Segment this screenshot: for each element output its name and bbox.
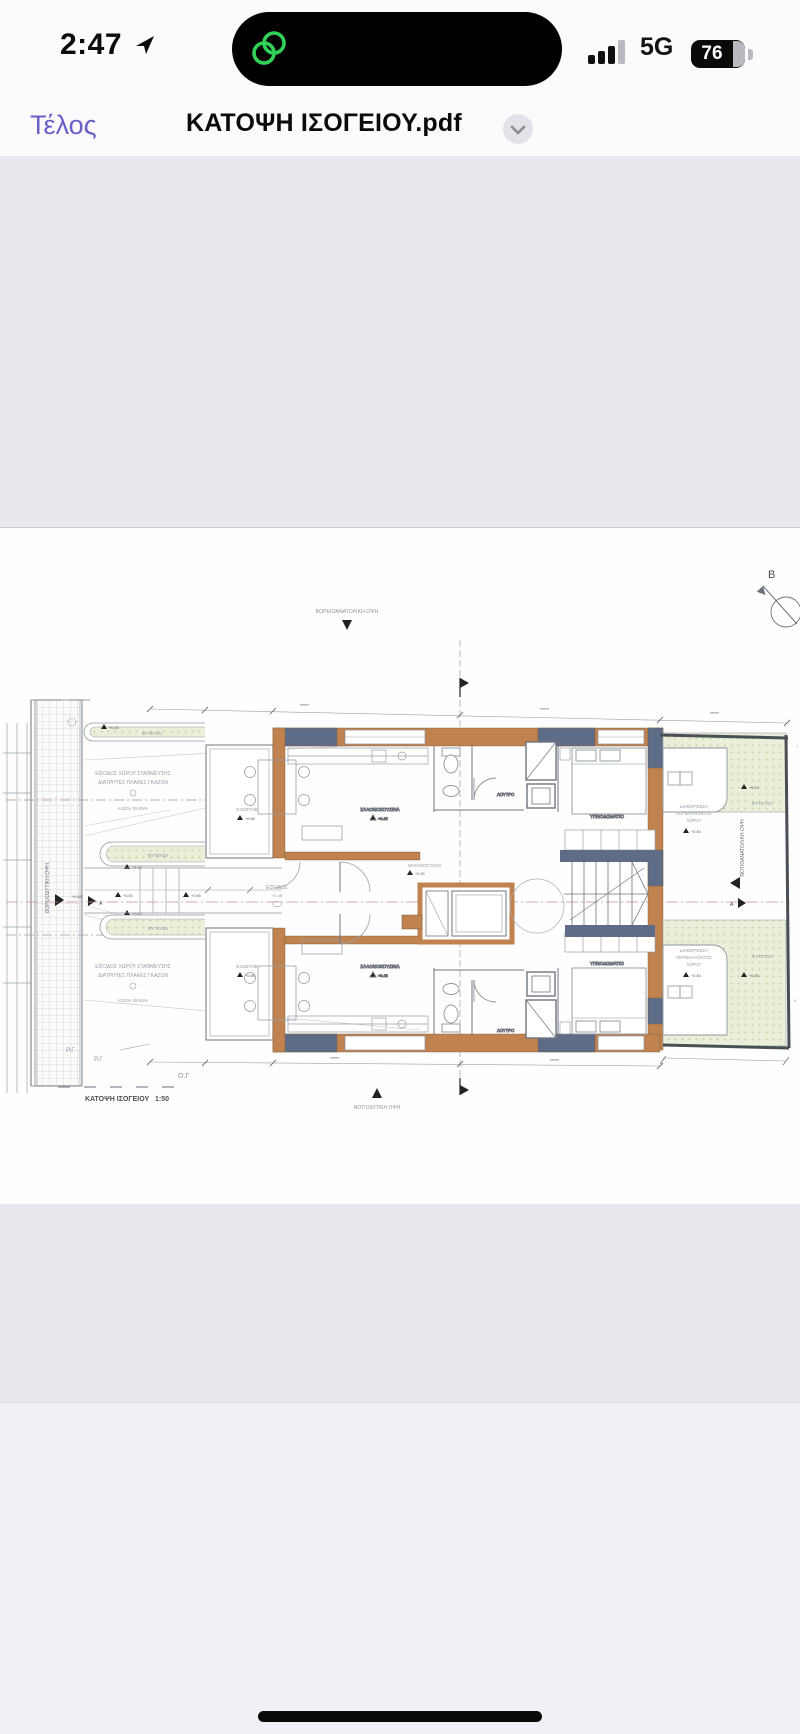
svg-text:+0.45: +0.45 [191,894,201,898]
parking-entrance-label-top: ΕΙΣΟΔΟΣ ΧΩΡΟΥ ΣΤΑΘΜΕΥΣΗΣ ΔΙΑΤΡΗΤΕΣ ΠΛΑΚΕ… [95,771,171,811]
svg-text:ΕΙΣΟΔΟΣ ΧΩΡΟΥ ΣΤΑΘΜΕΥΣΗΣ: ΕΙΣΟΔΟΣ ΧΩΡΟΥ ΣΤΑΘΜΕΥΣΗΣ [95,964,171,970]
svg-text:+0.45: +0.45 [378,974,388,978]
battery-cap [748,49,753,60]
svg-text:+0.45: +0.45 [415,872,425,876]
status-time: 2:47 [60,28,122,62]
svg-text:ΥΠΝΟΔΩΜΑΤΙΟ: ΥΠΝΟΔΩΜΑΤΙΟ [590,961,624,966]
svg-text:7: 7 [796,744,799,749]
unit-top-interior: ΛΟΥΤΡΟ ΥΠΝΟΔΩΜΑΤΙΟ ΣΑΛΟΝΟΚΟΥΖΙΝΑ +0.45 [245,740,656,850]
svg-text:+0.45: +0.45 [72,895,82,899]
svg-text:ΦΥΤΕΥΣΗ: ΦΥΤΕΥΣΗ [752,954,773,959]
title-menu-button[interactable] [503,114,533,144]
document-title: ΚΑΤΟΨΗ ΙΣΟΓΕΙΟΥ.pdf [186,109,462,138]
dimension-line-top [147,704,790,726]
chevron-down-icon [503,114,533,144]
plan-caption: ΚΑΤΟΨΗ ΙΣΟΓΕΙΟΥ 1:50 [85,1096,169,1103]
iphone-screen: 2:47 5G 76 Τέλος ΚΑΤΟΨΗ ΙΣΟΓΕΙΟΥ.pdf [0,0,800,1734]
elevator [402,885,512,942]
bottom-toolbar [0,1402,800,1734]
svg-text:+0.45: +0.45 [123,894,133,898]
svg-text:Ρ.Γ: Ρ.Γ [94,1056,103,1063]
svg-text:Β: Β [768,569,775,581]
core-entrance-hall: ΜΗΧΑΝΟΣΤΑΣΙΟ +0.45 [274,862,442,944]
battery-percent: 76 [691,43,733,65]
landscape-right-bottom: ΔΙΑΜΟΡΦΩΣΗ ΠΕΡΙΒΑΛΛΟΝΤΟΣ ΧΩΡΟΥ +0.45 ΦΥΤ… [663,920,786,1046]
done-button[interactable]: Τέλος [30,110,97,141]
location-arrow-icon [134,34,156,61]
signal-bars-icon [588,40,628,64]
landscape-right-top: ΔΙΑΜΟΡΦΩΣΗ ΠΕΡΙΒΑΛΛΟΝΤΟΣ ΧΩΡΟΥ +0.45 ΦΥΤ… [663,733,786,834]
svg-text:ΔΙΑΤΡΗΤΕΣ ΠΛΑΚΕΣ ΓΚΑΖΟΝ: ΔΙΑΤΡΗΤΕΣ ΠΛΑΚΕΣ ΓΚΑΖΟΝ [98,973,168,979]
battery-icon: 76 [691,40,745,68]
svg-text:ΚΛΙΣΗ 29.95%: ΚΛΙΣΗ 29.95% [118,806,148,811]
svg-text:ΧΩΡΟΥ: ΧΩΡΟΥ [687,962,702,967]
svg-text:ΣΑΛΟΝΟΚΟΥΖΙΝΑ: ΣΑΛΟΝΟΚΟΥΖΙΝΑ [360,807,400,812]
svg-text:A: A [730,902,734,908]
svg-text:ΜΗΧΑΝΟΣΤΑΣΙΟ: ΜΗΧΑΝΟΣΤΑΣΙΟ [408,863,442,868]
svg-text:ΕΞΩΣΤΗΣ: ΕΞΩΣΤΗΣ [236,964,257,969]
dynamic-island[interactable] [232,12,562,86]
svg-text:+0.45: +0.45 [691,830,701,834]
turning-circle [510,879,564,933]
svg-text:+0.68: +0.68 [245,974,255,978]
svg-text:ΝΟΤΙΟΑΝΑΤΟΛΙΚΗ ΟΨΗ: ΝΟΤΙΟΑΝΑΤΟΛΙΚΗ ΟΨΗ [740,819,746,877]
svg-text:ΦΥΤΕΥΣΗ: ΦΥΤΕΥΣΗ [142,731,163,736]
staircase [560,850,655,937]
svg-text:ΔΙΑΜΟΡΦΩΣΗ: ΔΙΑΜΟΡΦΩΣΗ [680,804,708,809]
floor-plan-drawing: Β ΒΟΡΕΙΟΑΝΑΤΟΛΙΚΗ ΟΨΗ [0,528,800,1204]
balcony-bottom-unit: ΕΞΩΣΤΗΣ +0.68 [206,928,273,1040]
svg-text:+0.45: +0.45 [691,974,701,978]
entrance-walkway: A +0.45 +0.45 ΕΙΣΟΔΟΣ +0.45 [6,868,790,913]
balcony-top-unit: ΕΞΩΣΤΗΣ +0.68 [206,745,273,858]
svg-text:Ρ.Γ: Ρ.Γ [66,1047,75,1054]
pdf-background-bottom[interactable] [0,1204,800,1402]
svg-text:+0.68: +0.68 [245,817,255,821]
svg-text:ΝΟΤΙΟΔΥΤΙΚΗ ΟΨΗ: ΝΟΤΙΟΔΥΤΙΚΗ ΟΨΗ [354,1105,401,1111]
planting-strip-bottom: ΦΥΤΕΥΣΗ +0.45 [100,910,205,939]
svg-text:ΦΥΤΕΥΣΗ: ΦΥΤΕΥΣΗ [148,926,169,931]
svg-text:ΔΙΑΤΡΗΤΕΣ ΠΛΑΚΕΣ ΓΚΑΖΟΝ: ΔΙΑΤΡΗΤΕΣ ΠΛΑΚΕΣ ΓΚΑΖΟΝ [98,780,168,786]
svg-text:ΦΥΤΕΥΣΗ: ΦΥΤΕΥΣΗ [752,801,773,806]
svg-text:ΒΟΡΕΙΟΔΥΤΙΚΗ ΟΨΗ: ΒΟΡΕΙΟΔΥΤΙΚΗ ΟΨΗ [45,863,51,913]
svg-text:ΧΩΡΟΥ: ΧΩΡΟΥ [687,818,702,823]
svg-text:ΠΕΡΙΒΑΛΛΟΝΤΟΣ: ΠΕΡΙΒΑΛΛΟΝΤΟΣ [676,955,712,960]
pdf-page[interactable]: Β ΒΟΡΕΙΟΑΝΑΤΟΛΙΚΗ ΟΨΗ [0,528,800,1204]
svg-text:ΚΛΙΣΗ 29.95%: ΚΛΙΣΗ 29.95% [118,998,148,1003]
svg-text:ΛΟΥΤΡΟ: ΛΟΥΤΡΟ [497,1028,515,1033]
planting-strip-top: ΦΥΤΕΥΣΗ +0.45 [84,723,205,741]
svg-text:ΠΕΡΙΒΑΛΛΟΝΤΟΣ: ΠΕΡΙΒΑΛΛΟΝΤΟΣ [676,811,712,816]
status-and-nav-bar: 2:47 5G 76 Τέλος ΚΑΤΟΨΗ ΙΣΟΓΕΙΟΥ.pdf [0,0,800,156]
svg-text:6: 6 [794,998,797,1003]
svg-text:ΕΙΣΟΔΟΣ ΧΩΡΟΥ ΣΤΑΘΜΕΥΣΗΣ: ΕΙΣΟΔΟΣ ΧΩΡΟΥ ΣΤΑΘΜΕΥΣΗΣ [95,771,171,777]
battery-empty-part [733,41,745,67]
svg-text:ΛΟΥΤΡΟ: ΛΟΥΤΡΟ [497,792,515,797]
elevation-label-ne: ΒΟΡΕΙΟΑΝΑΤΟΛΙΚΗ ΟΨΗ [316,609,379,630]
parking-entrance-label-bottom: ΕΙΣΟΔΟΣ ΧΩΡΟΥ ΣΤΑΘΜΕΥΣΗΣ ΔΙΑΤΡΗΤΕΣ ΠΛΑΚΕ… [95,964,171,1003]
svg-text:Ο.Γ: Ο.Γ [178,1073,189,1080]
svg-text:1:50: 1:50 [155,1096,169,1103]
pdf-background-top[interactable] [0,156,800,529]
svg-text:ΕΞΩΣΤΗΣ: ΕΞΩΣΤΗΣ [236,807,257,812]
grass-paver-grid [37,700,80,1086]
svg-text:ΒΟΡΕΙΟΑΝΑΤΟΛΙΚΗ ΟΨΗ: ΒΟΡΕΙΟΑΝΑΤΟΛΙΚΗ ΟΨΗ [316,609,379,615]
svg-text:+0.45: +0.45 [109,726,119,730]
svg-text:+0.45: +0.45 [378,817,388,821]
home-indicator[interactable] [258,1711,542,1722]
planting-strip-middle: ΦΥΤΕΥΣΗ +0.45 [100,842,205,870]
svg-text:+0.45: +0.45 [749,974,759,978]
north-arrow: Β [757,569,800,627]
unit-bottom-interior: ΛΟΥΤΡΟ ΥΠΝΟΔΩΜΑΤΙΟ ΣΑΛΟΝΟΚΟΥΖΙΝΑ +0.45 [245,932,656,1040]
dimension-line-bottom [147,1057,663,1069]
svg-text:ΥΠΝΟΔΩΜΑΤΙΟ: ΥΠΝΟΔΩΜΑΤΙΟ [590,814,624,819]
svg-text:ΣΑΛΟΝΟΚΟΥΖΙΝΑ: ΣΑΛΟΝΟΚΟΥΖΙΝΑ [360,964,400,969]
svg-text:+0.45: +0.45 [749,786,759,790]
svg-text:ΚΑΤΟΨΗ ΙΣΟΓΕΙΟΥ: ΚΑΤΟΨΗ ΙΣΟΓΕΙΟΥ [85,1096,149,1103]
network-type-label: 5G [640,33,673,62]
elevation-label-sw: ΝΟΤΙΟΔΥΤΙΚΗ ΟΨΗ [354,1088,401,1111]
svg-text:ΔΙΑΜΟΡΦΩΣΗ: ΔΙΑΜΟΡΦΩΣΗ [680,948,708,953]
svg-text:+0.45: +0.45 [272,893,283,898]
svg-text:ΦΥΤΕΥΣΗ: ΦΥΤΕΥΣΗ [148,853,169,858]
section-line [460,640,469,1095]
elevation-label-se: ΝΟΤΙΟΑΝΑΤΟΛΙΚΗ ΟΨΗ A [730,819,746,908]
